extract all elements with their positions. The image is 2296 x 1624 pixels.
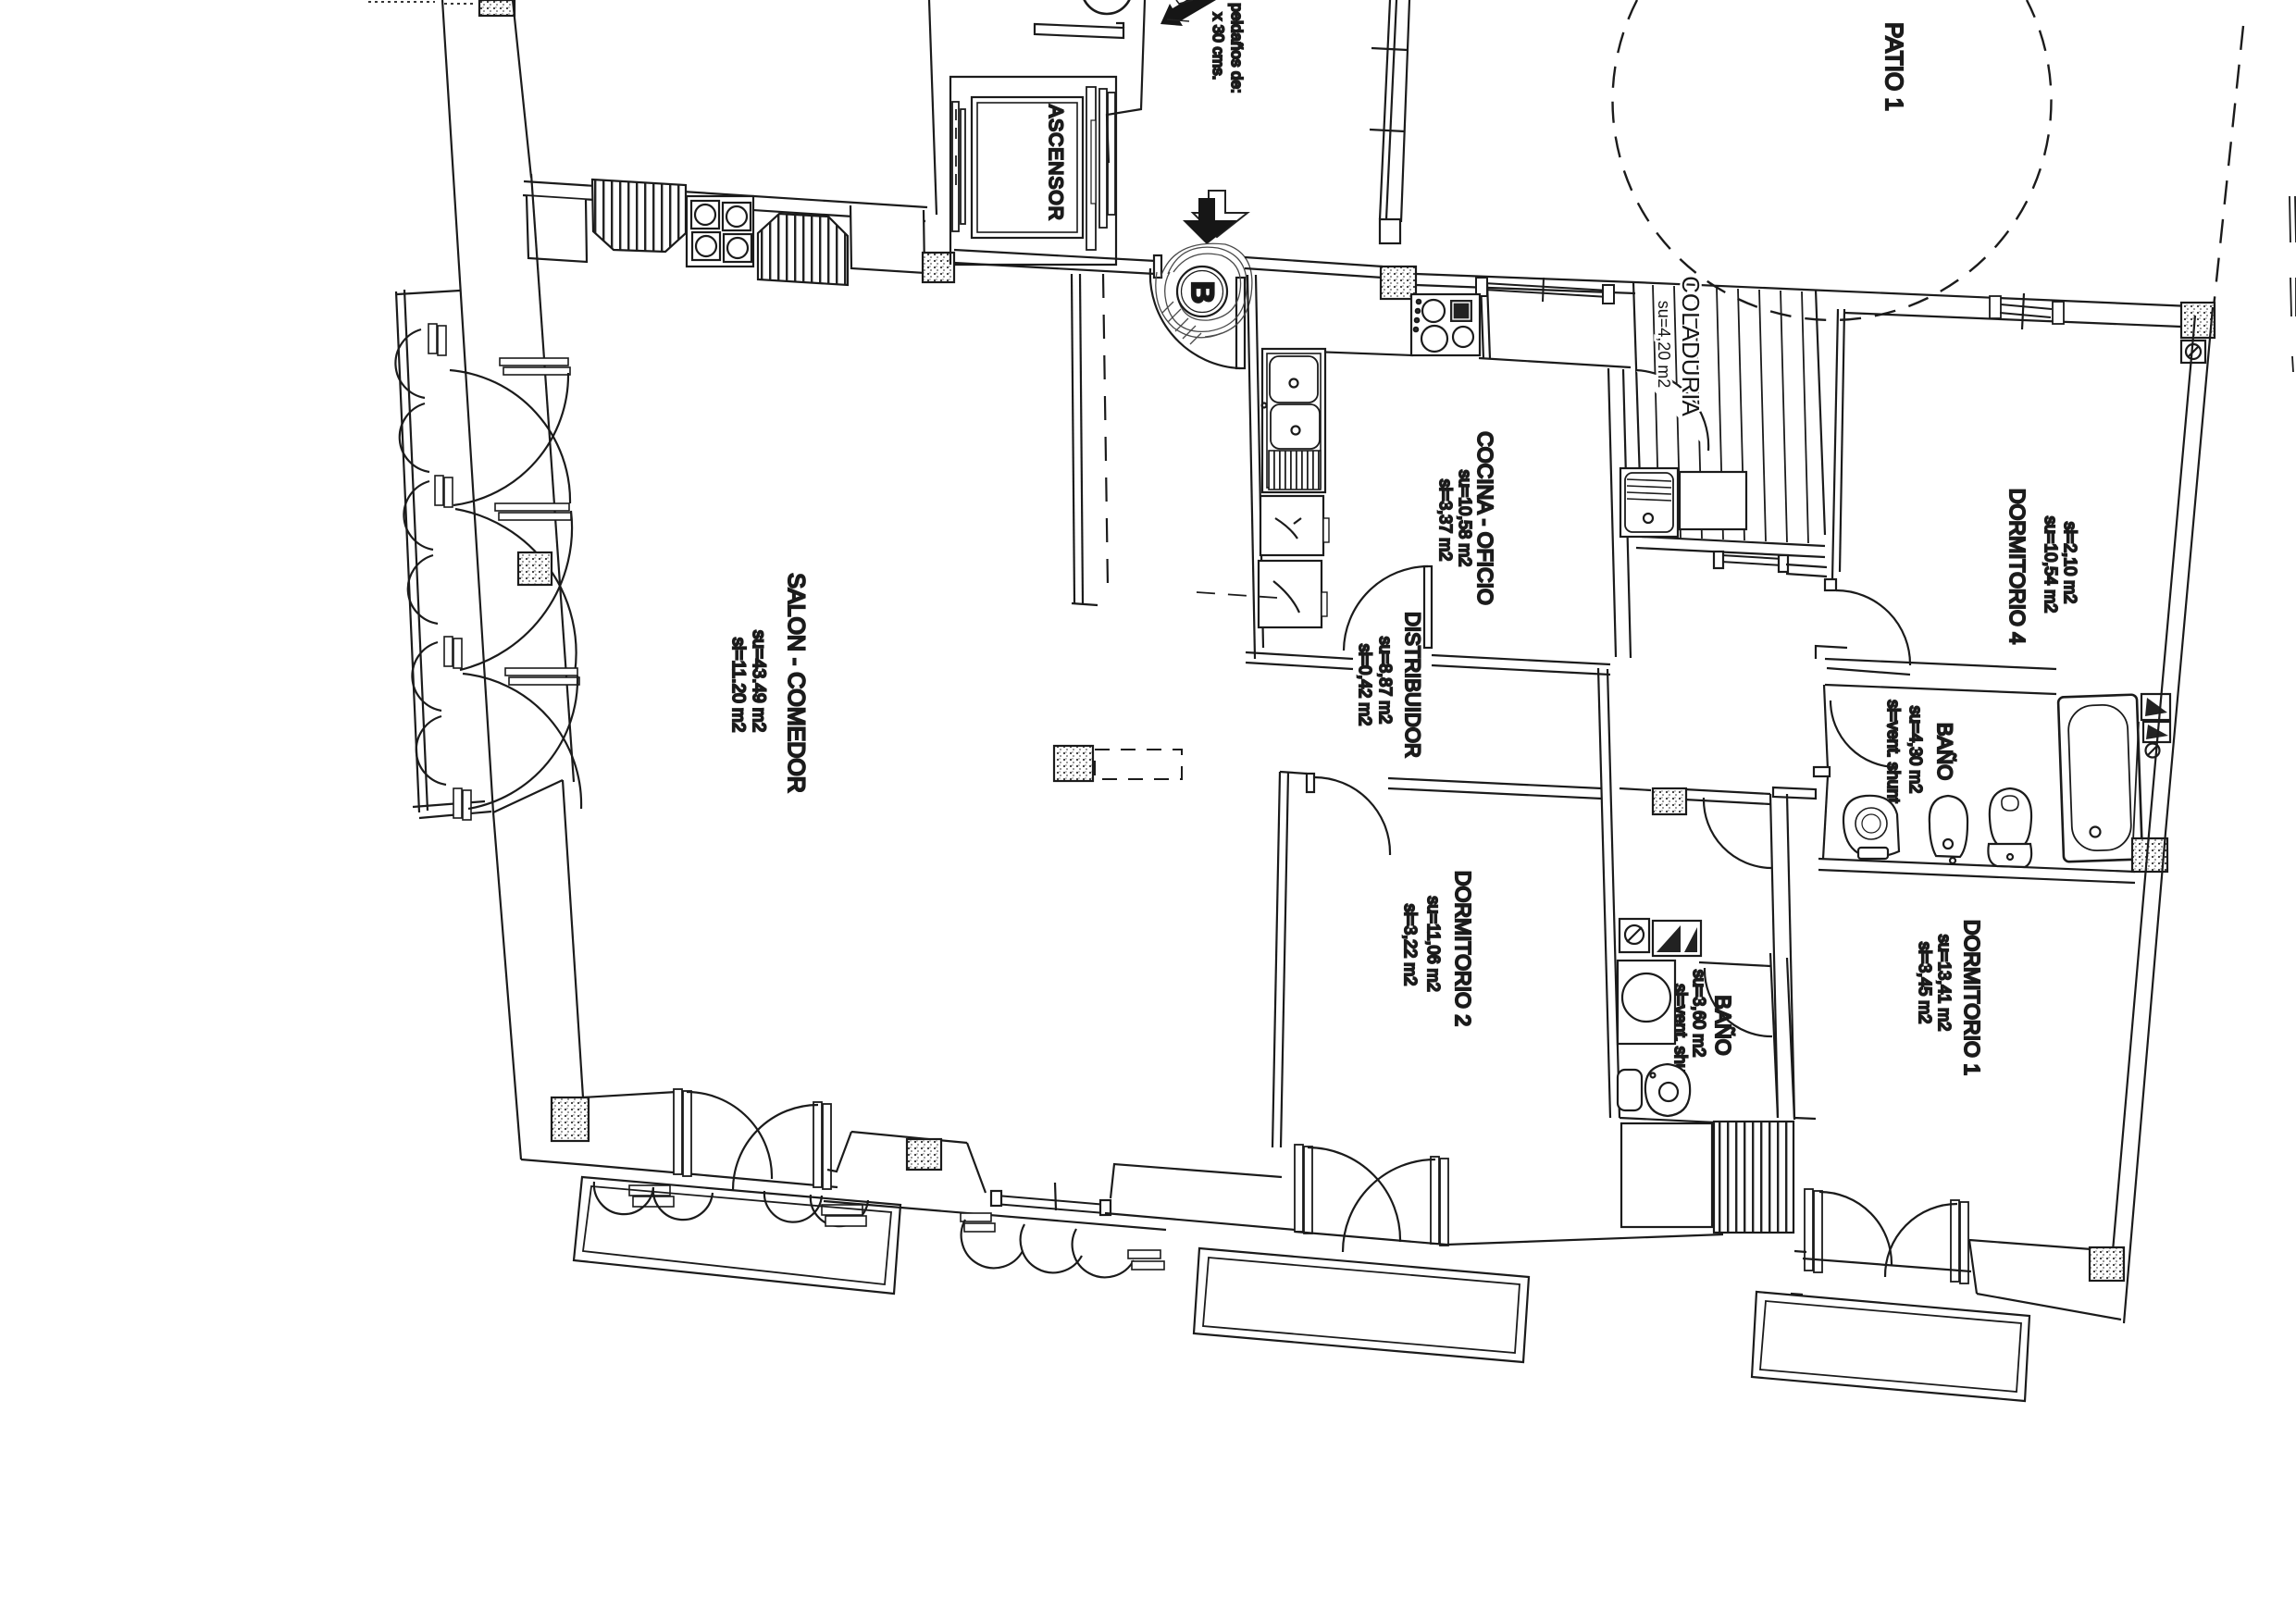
svg-text:peldaños de:: peldaños de:: [1228, 3, 1246, 93]
svg-text:PATIO 1: PATIO 1: [1880, 22, 1908, 111]
svg-text:su=11,06 m2: su=11,06 m2: [1424, 896, 1443, 991]
svg-text:su=4,30 m2: su=4,30 m2: [1906, 706, 1925, 794]
svg-text:DISTRIBUIDOR: DISTRIBUIDOR: [1401, 612, 1424, 758]
svg-text:su=43.49 m2: su=43.49 m2: [749, 630, 768, 732]
svg-text:si=3,37 m2: si=3,37 m2: [1436, 479, 1455, 562]
svg-text:si=0,42 m2: si=0,42 m2: [1356, 644, 1374, 726]
svg-text:su=8,87 m2: su=8,87 m2: [1376, 637, 1395, 725]
svg-text:x 30 cms.: x 30 cms.: [1210, 13, 1227, 81]
svg-text:DORMITORIO 2: DORMITORIO 2: [1451, 871, 1475, 1026]
svg-text:COCINA - OFICIO: COCINA - OFICIO: [1473, 431, 1497, 605]
svg-text:su=10,58 m2: su=10,58 m2: [1456, 470, 1474, 567]
svg-text:su=10,54 m2: su=10,54 m2: [2042, 516, 2060, 614]
svg-text:si=3,22 m2: si=3,22 m2: [1401, 904, 1420, 986]
svg-text:COLADURIA: COLADURIA: [1677, 276, 1705, 416]
svg-text:BAÑO: BAÑO: [1933, 723, 1956, 780]
svg-text:su=13,41 m2: su=13,41 m2: [1935, 935, 1954, 1032]
svg-text:SALON - COMEDOR: SALON - COMEDOR: [783, 573, 809, 793]
svg-text:si=3,45 m2: si=3,45 m2: [1916, 942, 1934, 1024]
svg-text:si=2,10 m2: si=2,10 m2: [2061, 522, 2079, 604]
svg-text:si=vent. shunt: si=vent. shunt: [1884, 700, 1903, 803]
svg-text:B: B: [1185, 281, 1220, 304]
svg-text:BAÑO: BAÑO: [1711, 995, 1735, 1055]
svg-text:si=11.20 m2: si=11.20 m2: [728, 638, 748, 733]
svg-text:ASCENSOR: ASCENSOR: [1045, 105, 1066, 221]
svg-text:su=4,20 m2: su=4,20 m2: [1655, 301, 1673, 389]
svg-text:DORMITORIO 1: DORMITORIO 1: [1960, 920, 1984, 1075]
svg-text:su=3,60 m2: su=3,60 m2: [1690, 970, 1708, 1058]
svg-text:DORMITORIO 4: DORMITORIO 4: [2005, 489, 2029, 644]
